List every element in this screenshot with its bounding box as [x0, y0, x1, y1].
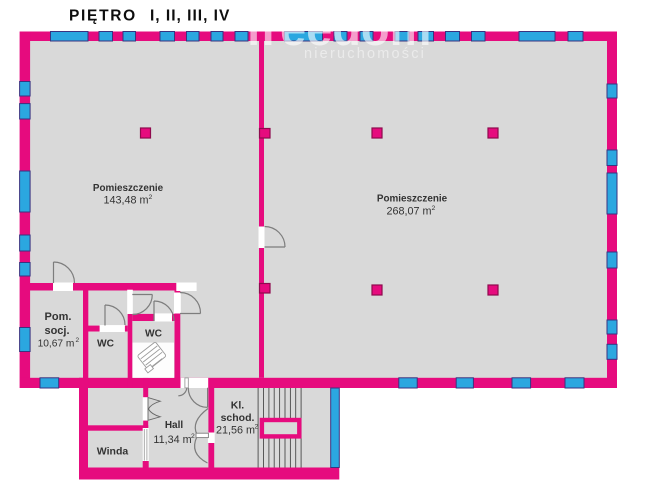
- svg-text:11,34 m: 11,34 m: [153, 434, 191, 446]
- svg-text:Winda: Winda: [97, 446, 129, 458]
- svg-text:268,07 m: 268,07 m: [386, 206, 431, 218]
- svg-text:socj.: socj.: [44, 325, 69, 337]
- svg-text:PIĘTRO: PIĘTRO: [69, 8, 137, 25]
- svg-text:2: 2: [255, 424, 259, 431]
- svg-text:WC: WC: [97, 339, 115, 350]
- svg-text:I, II, III, IV: I, II, III, IV: [150, 8, 230, 25]
- svg-text:nieruchomości: nieruchomości: [304, 46, 426, 62]
- svg-text:Pomieszczenie: Pomieszczenie: [377, 194, 448, 205]
- svg-text:2: 2: [76, 337, 80, 344]
- svg-text:Pomieszczenie: Pomieszczenie: [93, 183, 164, 194]
- svg-text:Kl.: Kl.: [231, 399, 245, 411]
- svg-text:10,67 m: 10,67 m: [38, 339, 75, 350]
- svg-text:2: 2: [191, 433, 195, 440]
- svg-text:143,48 m: 143,48 m: [103, 195, 148, 207]
- svg-text:2: 2: [149, 194, 153, 201]
- svg-text:Pom.: Pom.: [45, 311, 72, 323]
- svg-text:WC: WC: [145, 329, 163, 340]
- svg-text:2: 2: [432, 205, 436, 212]
- svg-text:21,56 m: 21,56 m: [216, 424, 255, 436]
- svg-text:schod.: schod.: [221, 412, 255, 424]
- svg-text:Hall: Hall: [165, 420, 184, 431]
